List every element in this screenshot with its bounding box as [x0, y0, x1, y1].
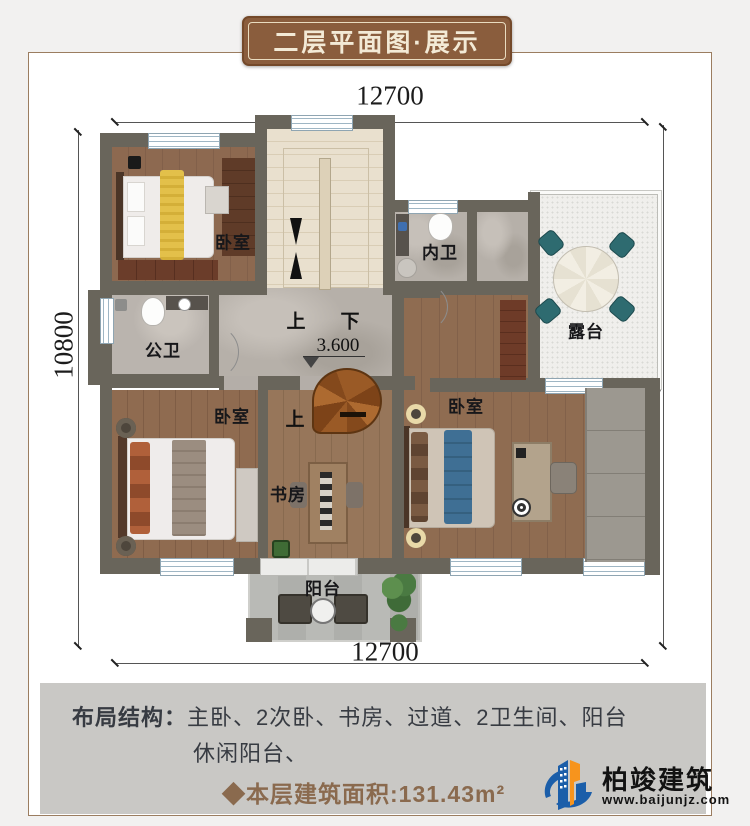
desk-items	[320, 472, 332, 530]
pillow	[411, 432, 428, 522]
ceiling-lamp-icon	[128, 156, 141, 169]
room-label-bath-inner: 内卫	[422, 239, 458, 264]
plant-icon	[386, 612, 412, 636]
stair-arrow-down-icon	[290, 218, 302, 245]
wall-segment	[88, 290, 100, 385]
room-label-bedroom-master: 卧室	[448, 393, 484, 418]
side-table	[205, 186, 229, 214]
spiral-staircase	[312, 368, 382, 434]
closet	[585, 388, 645, 562]
room-label-balcony: 阳台	[305, 575, 341, 600]
wall-segment	[100, 281, 267, 295]
brand-website: www.baijunjz.com	[602, 792, 730, 807]
shower-drain	[397, 258, 417, 278]
window	[450, 558, 522, 576]
patio-umbrella-table	[553, 246, 619, 312]
desk-items	[516, 448, 526, 458]
dimension-line-left	[78, 130, 79, 648]
layout-structure-line: 布局结构：主卧、2次卧、书房、过道、2卫生间、阳台	[72, 700, 628, 732]
window	[291, 115, 353, 131]
nightstand-lamp	[406, 528, 426, 548]
wall-segment	[100, 133, 112, 574]
window	[160, 558, 234, 576]
wall-segment	[528, 192, 540, 390]
wardrobe	[500, 300, 526, 380]
rug	[236, 468, 258, 542]
bed-runner-blanket	[172, 440, 206, 536]
stairs-up-label: 上	[286, 307, 305, 334]
toilet	[141, 297, 165, 326]
plant-icon	[382, 574, 416, 614]
window	[148, 133, 220, 149]
room-label-bath-public: 公卫	[145, 337, 181, 362]
door-opening	[224, 376, 258, 390]
elevation-label: 3.600	[317, 335, 360, 357]
nightstand-lamp	[116, 536, 136, 556]
page: 二层平面图·展示 12700 12700 10800 10800	[0, 0, 750, 826]
room-label-study: 书房	[270, 481, 306, 506]
nightstand-lamp	[406, 404, 426, 424]
bathroom-vanity	[396, 214, 409, 256]
sink	[178, 298, 191, 311]
door-swing-arc	[185, 325, 239, 379]
bed-throw-blanket	[160, 170, 184, 260]
floor-symbol-icon	[512, 498, 531, 517]
stairs-up-label-2: 上	[285, 405, 304, 432]
pillow	[127, 182, 145, 212]
wall-segment	[392, 288, 404, 560]
pillow	[130, 442, 150, 534]
room-label-bedroom-bottomleft: 卧室	[214, 403, 250, 428]
hall-room-floor	[477, 212, 528, 281]
pillow	[127, 216, 145, 246]
layout-structure-label: 布局结构：	[72, 705, 187, 730]
wall-segment	[467, 212, 477, 283]
plant-pot-icon	[272, 540, 290, 558]
balcony-sliding-door	[260, 558, 358, 576]
layout-structure-line2: 休闲阳台、	[193, 736, 308, 768]
wall-segment	[258, 390, 268, 560]
shower-head	[115, 299, 127, 311]
sink	[398, 222, 407, 231]
balcony-post	[246, 618, 272, 642]
spiral-stair-step	[340, 412, 366, 417]
dimension-top: 12700	[356, 81, 424, 112]
stairs-down-label: 下	[340, 307, 359, 334]
title-banner: 二层平面图·展示	[242, 16, 512, 66]
stair-arrow-up-icon	[290, 252, 302, 279]
nightstand-lamp	[116, 418, 136, 438]
window	[408, 200, 458, 214]
layout-structure-text: 主卧、2次卧、书房、过道、2卫生间、阳台	[187, 705, 627, 730]
dimension-left: 10800	[49, 311, 80, 379]
chair	[346, 482, 363, 508]
bed-runner-blanket	[444, 430, 472, 524]
door-swing-arc	[402, 284, 448, 330]
stair-railing	[319, 158, 331, 290]
balcony-table	[310, 598, 336, 624]
wall-segment	[645, 385, 660, 575]
wall-segment	[255, 115, 267, 295]
wall-segment	[383, 200, 540, 212]
chair	[550, 462, 577, 494]
toilet	[428, 213, 453, 241]
tv-cabinet	[118, 260, 218, 280]
floor-area-text: ◆本层建筑面积:131.43m²	[222, 775, 505, 809]
window	[100, 298, 114, 344]
room-label-terrace: 露台	[568, 318, 604, 343]
page-title: 二层平面图·展示	[248, 22, 506, 60]
elevation-marker-icon	[303, 357, 319, 368]
brand-logo-icon	[538, 752, 600, 814]
room-label-bedroom-topleft: 卧室	[215, 229, 251, 254]
